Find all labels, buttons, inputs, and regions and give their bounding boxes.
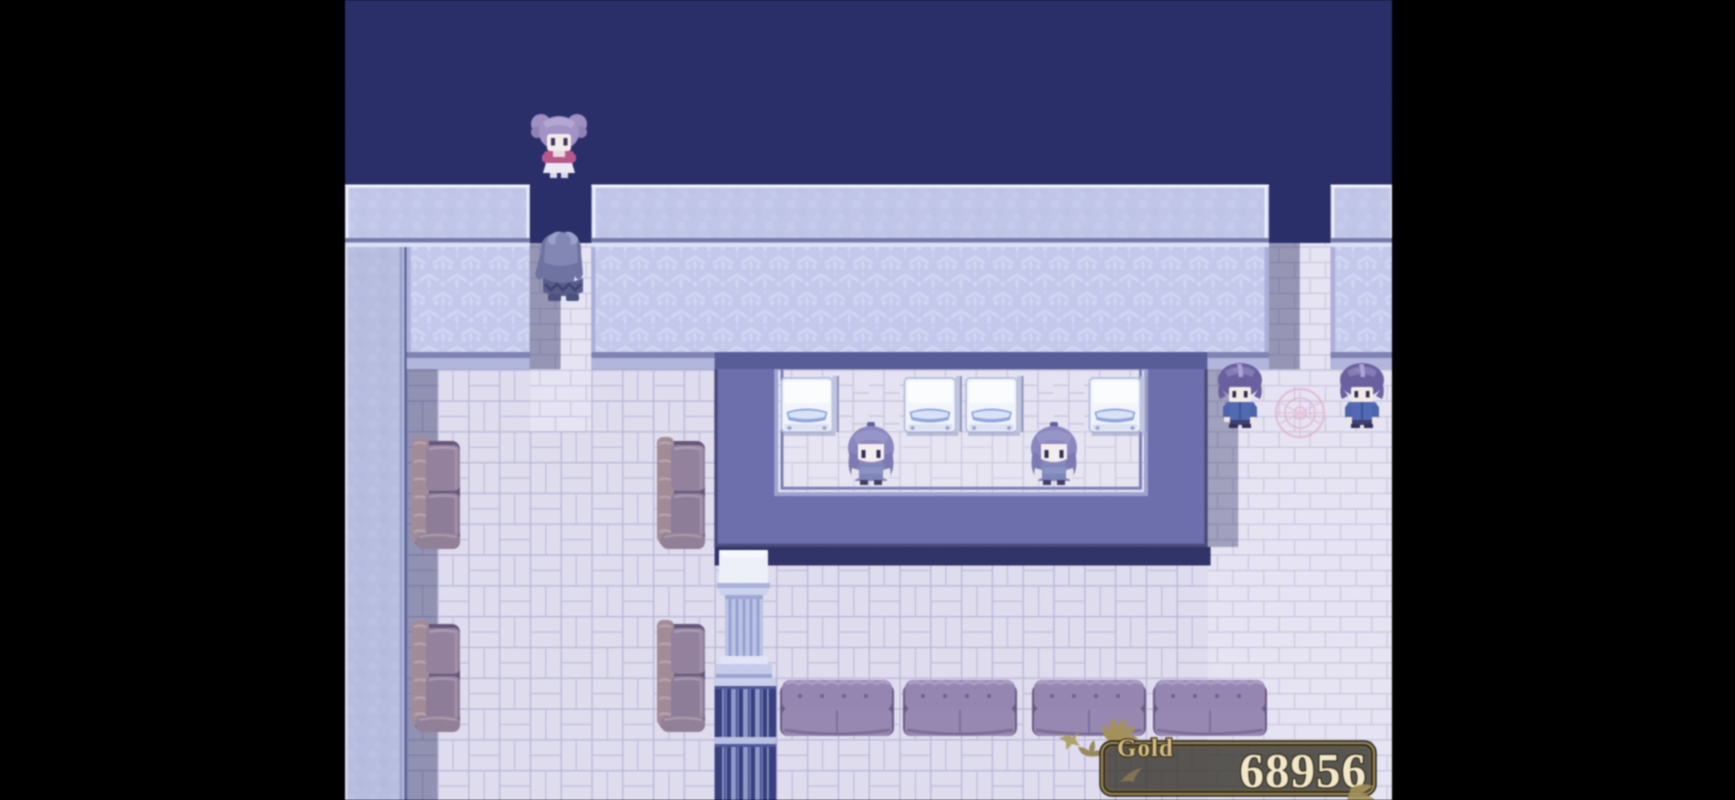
svg-text:68956: 68956 bbox=[1240, 743, 1368, 798]
svg-text:Gold: Gold bbox=[1117, 735, 1174, 762]
